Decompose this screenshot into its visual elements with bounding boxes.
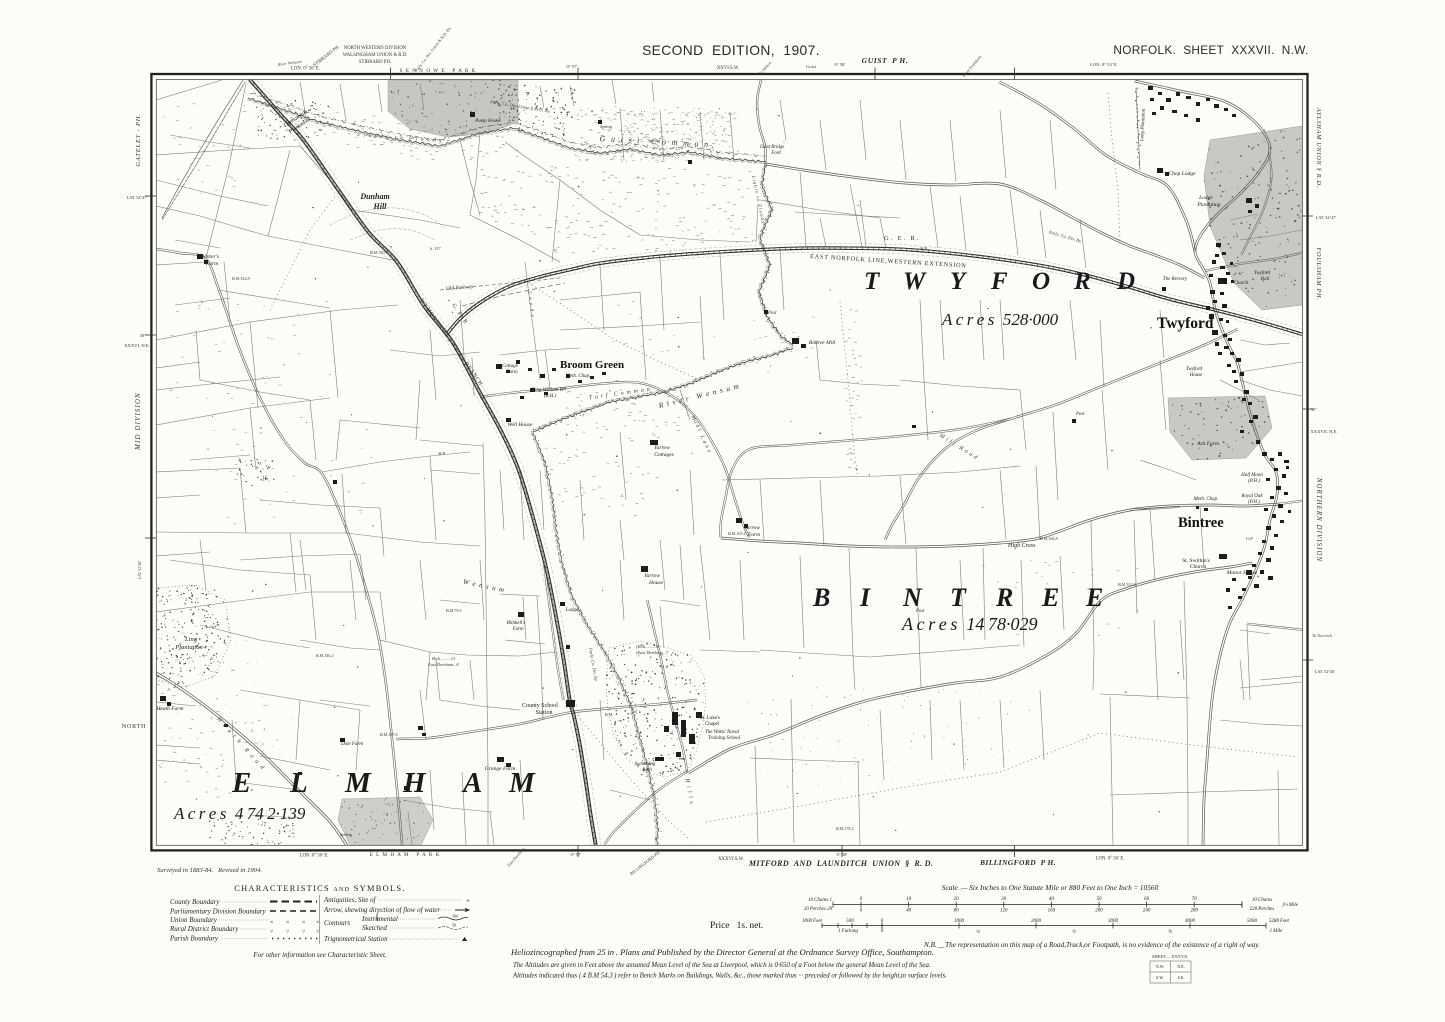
svg-text:Broom Green: Broom Green <box>560 359 624 371</box>
svg-text:H: H <box>402 767 427 799</box>
svg-text:D: D <box>1116 268 1135 295</box>
svg-text:B.M.175.2: B.M.175.2 <box>836 826 854 831</box>
svg-text:Half Moon: Half Moon <box>1240 473 1263 478</box>
svg-text:WALSINGHAM UNION & R.D.: WALSINGHAM UNION & R.D. <box>343 53 408 58</box>
svg-text:LAT. 52°47′: LAT. 52°47′ <box>1316 215 1337 220</box>
svg-text:Surveyed in 1883-84. Revised: Surveyed in 1883-84. Revised in 1904. <box>157 867 262 874</box>
svg-text:Farm: Farm <box>747 532 760 538</box>
svg-text:Cottages: Cottages <box>654 452 674 458</box>
svg-text:B.M.79.5: B.M.79.5 <box>446 608 461 613</box>
svg-text:E: E <box>231 767 251 799</box>
svg-text:120: 120 <box>1000 909 1008 914</box>
svg-text:N.B. __ The representation on: N.B. __ The representation on this map o… <box>923 941 1260 949</box>
svg-text:½: ½ <box>1072 930 1076 935</box>
svg-text:B.M.147.6: B.M.147.6 <box>380 732 398 737</box>
svg-text:A c r e s 528·000: A c r e s 528·000 <box>941 310 1059 329</box>
svg-text:(Holt.........11: (Holt.........11 <box>636 644 659 649</box>
svg-text:S.E.: S.E. <box>1178 975 1185 980</box>
svg-text:High Cross: High Cross <box>1007 543 1036 549</box>
svg-text:10 Chains: 10 Chains <box>1252 898 1272 903</box>
svg-text:Bath: Bath <box>642 768 652 773</box>
svg-text:Church: Church <box>1190 564 1206 570</box>
svg-text:Scale .— Six Inches to One Sta: Scale .— Six Inches to One Statute Mile … <box>942 883 1159 892</box>
svg-text:A c r e s 14 78·029: A c r e s 14 78·029 <box>901 614 1038 634</box>
svg-text:B.M.150.9: B.M.150.9 <box>370 250 388 255</box>
svg-text:Hill: Hill <box>373 202 388 211</box>
svg-text:Union Boundary: Union Boundary <box>170 916 218 924</box>
svg-text:House: House <box>648 580 664 586</box>
svg-text:0° 57′: 0° 57′ <box>571 852 582 857</box>
svg-text:The Altitudes are given in Fee: The Altitudes are given in Feet above th… <box>513 962 931 969</box>
svg-text:E L M H A M P A R K: E L M H A M P A R K <box>370 852 441 858</box>
svg-text:Parliamentary Division Boundar: Parliamentary Division Boundary <box>169 908 267 916</box>
svg-text:Post: Post <box>1075 412 1085 417</box>
svg-text:B.M.152.8: B.M.152.8 <box>232 276 250 281</box>
svg-text:Guist: Guist <box>806 64 817 69</box>
svg-text:M: M <box>344 767 372 799</box>
svg-text:Post: Post <box>915 609 925 614</box>
svg-text:Price 1s. net.: Price 1s. net. <box>710 921 763 931</box>
svg-text:3000: 3000 <box>1108 919 1119 924</box>
svg-text:Bintree: Bintree <box>1178 515 1224 531</box>
svg-text:A: A <box>461 767 482 799</box>
svg-text:Parish Boundary: Parish Boundary <box>169 935 219 943</box>
svg-text:Well House: Well House <box>507 422 533 428</box>
svg-text:Trignometrical Station: Trignometrical Station <box>324 935 388 943</box>
svg-text:10 Chains 1: 10 Chains 1 <box>808 898 832 903</box>
svg-text:R: R <box>995 583 1013 612</box>
svg-text:S E N N O W E P A R K: S E N N O W E P A R K <box>400 68 477 74</box>
svg-text:(B.H.): (B.H.) <box>544 394 557 399</box>
svg-text:W: W <box>903 268 927 295</box>
svg-text:CHARACTERISTICS AND SYMBOLS.: CHARACTERISTICS AND SYMBOLS. <box>234 884 406 893</box>
svg-text:Meth. Chap.: Meth. Chap. <box>565 374 591 379</box>
svg-text:0° 58′: 0° 58′ <box>835 62 846 67</box>
svg-text:LON. 0° 56′ E.: LON. 0° 56′ E. <box>1096 857 1125 862</box>
svg-text:GATELEY - PH.: GATELEY - PH. <box>135 113 142 166</box>
svg-text:Ash Farm: Ash Farm <box>1196 441 1219 447</box>
svg-text:L: L <box>289 767 308 799</box>
svg-text:b. 157: b. 157 <box>430 246 441 251</box>
svg-text:Plantation: Plantation <box>1196 202 1220 208</box>
svg-text:Twyford: Twyford <box>1186 367 1203 372</box>
svg-text:Lodge: Lodge <box>565 608 579 613</box>
svg-text:Bintree Mill: Bintree Mill <box>809 340 836 346</box>
svg-text:(P.H.): (P.H.) <box>1248 500 1260 505</box>
svg-text:To Norwich: To Norwich <box>1312 633 1332 638</box>
svg-text:Sketched: Sketched <box>362 924 387 932</box>
svg-text:Spring: Spring <box>648 138 661 143</box>
svg-text:Heliozincographed from 25 in .: Heliozincographed from 25 in . Plans and… <box>510 947 934 957</box>
svg-text:20 Perches 20: 20 Perches 20 <box>804 907 833 912</box>
svg-text:M.P.: M.P. <box>437 451 446 456</box>
svg-text:Plantation: Plantation <box>174 644 202 651</box>
svg-text:E: E <box>1041 583 1059 612</box>
svg-text:(East Dereham...7: (East Dereham...7 <box>636 650 669 655</box>
svg-text:×: × <box>270 920 273 926</box>
svg-text:1000: 1000 <box>954 919 965 924</box>
svg-text:Church: Church <box>1234 281 1249 286</box>
svg-text:The Rectory: The Rectory <box>1163 277 1188 282</box>
svg-text:Swimming: Swimming <box>635 762 656 767</box>
svg-text:G. E. R.: G. E. R. <box>884 235 920 242</box>
svg-text:Dunham: Dunham <box>359 192 389 201</box>
svg-text:N.E.: N.E. <box>1177 964 1184 969</box>
svg-text:20: 20 <box>954 897 960 902</box>
svg-text:NORTH WESTERN DIVISION: NORTH WESTERN DIVISION <box>344 46 407 51</box>
svg-text:LAT. 52°46′: LAT. 52°46′ <box>138 561 142 580</box>
svg-text:70: 70 <box>1192 897 1198 902</box>
svg-text:Instrumental: Instrumental <box>361 915 398 923</box>
svg-text:XXXVI.S.W.: XXXVI.S.W. <box>718 857 744 862</box>
svg-text:XXXVII. N.E.: XXXVII. N.E. <box>1310 429 1337 434</box>
svg-text:Yarrow: Yarrow <box>644 573 660 579</box>
svg-text:Grange Farm: Grange Farm <box>485 766 515 772</box>
svg-text:Guist Bridge: Guist Bridge <box>760 145 786 150</box>
svg-text:50: 50 <box>1097 897 1103 902</box>
svg-text:Station: Station <box>535 710 552 716</box>
svg-text:Contours: Contours <box>324 919 350 927</box>
svg-text:40: 40 <box>1049 897 1055 902</box>
svg-text:Pump House: Pump House <box>474 119 501 124</box>
svg-text:Winter's: Winter's <box>201 254 219 260</box>
svg-text:Chop Lodge: Chop Lodge <box>1168 171 1196 177</box>
svg-text:Manor House: Manor House <box>1226 570 1258 576</box>
svg-text:LAT. 52°47′: LAT. 52°47′ <box>127 195 148 200</box>
svg-text:For other information see Char: For other information see Characteristic… <box>252 951 387 959</box>
svg-text:×: × <box>302 920 305 926</box>
svg-text:County School: County School <box>522 703 558 709</box>
svg-text:AYLSHAM UNION § R.D.: AYLSHAM UNION § R.D. <box>1315 107 1322 188</box>
svg-text:Blinkell's: Blinkell's <box>507 621 526 626</box>
svg-text:LON. 0° 53′ E.: LON. 0° 53′ E. <box>1090 62 1118 67</box>
svg-text:SECOND EDITION, 1907.: SECOND EDITION, 1907. <box>642 43 820 58</box>
svg-text:N: N <box>902 583 923 612</box>
svg-text:R: R <box>1073 268 1091 295</box>
svg-text:House: House <box>1189 373 1204 378</box>
svg-text:80: 80 <box>954 909 960 914</box>
svg-text:NORTH: NORTH <box>122 724 146 730</box>
svg-text:NORFOLK. SHEET XXXVII. N.W.: NORFOLK. SHEET XXXVII. N.W. <box>1113 43 1308 57</box>
svg-text:Chapel: Chapel <box>705 722 720 727</box>
svg-text:BILLINGFORD P H.: BILLINGFORD P H. <box>979 858 1056 867</box>
svg-text:Arrow, shewing direction of fl: Arrow, shewing direction of flow of wate… <box>323 906 440 914</box>
svg-text:E: E <box>1085 583 1103 612</box>
svg-text:GUIST P H.: GUIST P H. <box>862 56 909 65</box>
svg-text:Spring: Spring <box>340 832 353 837</box>
svg-text:}¼ Mile: }¼ Mile <box>1282 903 1299 908</box>
svg-text:×: × <box>316 920 319 926</box>
svg-text:MITFORD AND LAUNDITCH UNION: MITFORD AND LAUNDITCH UNION § R. D. <box>748 859 933 868</box>
svg-text:Antiquities, Site of: Antiquities, Site of <box>323 896 377 904</box>
svg-text:G.P.: G.P. <box>1246 536 1253 541</box>
svg-text:+: + <box>466 897 470 905</box>
svg-text:Training School: Training School <box>708 736 741 741</box>
svg-text:Altitudes indicated thus ( 4 B: Altitudes indicated thus ( 4 B.M 54.3 ) … <box>512 973 947 980</box>
svg-text:SHEET.....XXXVII.: SHEET.....XXXVII. <box>1152 954 1188 959</box>
svg-text:Ford: Ford <box>770 151 781 156</box>
svg-text:2000: 2000 <box>1031 919 1042 924</box>
svg-text:160: 160 <box>1048 909 1056 914</box>
svg-text:FOULSHAM PH.: FOULSHAM PH. <box>1315 246 1322 300</box>
svg-text:Holt..........13: Holt..........13 <box>431 656 456 661</box>
svg-text:B.M.106.8: B.M.106.8 <box>1040 536 1058 541</box>
svg-text:East Dereham...8: East Dereham...8 <box>427 662 459 667</box>
svg-text:Yarrow: Yarrow <box>744 525 760 531</box>
svg-text:Yarrow: Yarrow <box>654 445 670 451</box>
svg-text:LAT. 52°46′: LAT. 52°46′ <box>1315 669 1336 674</box>
svg-text:10: 10 <box>906 897 912 902</box>
svg-text:Dale Farm: Dale Farm <box>340 742 363 747</box>
svg-text:F: F <box>990 268 1008 295</box>
svg-text:30: 30 <box>1001 897 1007 902</box>
svg-text:0° 58′: 0° 58′ <box>837 852 848 857</box>
svg-text:B.M.103.4: B.M.103.4 <box>728 531 746 536</box>
svg-text:1 Mile: 1 Mile <box>1270 929 1283 934</box>
svg-text:Farm: Farm <box>505 370 518 375</box>
svg-text:200: 200 <box>1095 909 1103 914</box>
svg-text:(P.H.): (P.H.) <box>1248 479 1260 484</box>
svg-text:Rural District Boundary: Rural District Boundary <box>169 925 239 933</box>
svg-text:Lodge: Lodge <box>1198 195 1213 201</box>
svg-text:N.W.: N.W. <box>1156 964 1164 969</box>
svg-text:S.W.: S.W. <box>1156 975 1164 980</box>
svg-text:B.M.152.2: B.M.152.2 <box>1118 582 1136 587</box>
svg-text:4000: 4000 <box>1185 919 1196 924</box>
svg-text:T: T <box>864 268 881 295</box>
svg-text:500: 500 <box>846 919 854 924</box>
svg-text:5000: 5000 <box>1247 919 1258 924</box>
svg-text:Royal Oak: Royal Oak <box>1240 494 1263 499</box>
svg-text:50: 50 <box>452 923 456 928</box>
svg-text:B.M.146.2: B.M.146.2 <box>316 653 334 658</box>
svg-text:M.P.: M.P. <box>919 246 928 251</box>
svg-text:Ling: Ling <box>184 636 198 643</box>
svg-text:240: 240 <box>1143 909 1151 914</box>
svg-text:XXXVI. N.E.: XXXVI. N.E. <box>124 343 150 348</box>
svg-text:Spring: Spring <box>600 124 613 129</box>
svg-text:30′′: 30′′ <box>1311 407 1317 412</box>
svg-text:5280 Feet: 5280 Feet <box>1269 919 1289 924</box>
svg-text:Cottage: Cottage <box>502 364 519 369</box>
svg-text:MID DIVISION: MID DIVISION <box>135 392 142 451</box>
svg-text:Twyford: Twyford <box>1157 315 1214 332</box>
svg-text:T: T <box>950 583 967 612</box>
svg-text:STIBBARD PH.: STIBBARD PH. <box>359 60 391 65</box>
svg-text:St. Luke's: St. Luke's <box>700 716 720 721</box>
svg-text:1 Furlong: 1 Furlong <box>838 929 858 934</box>
svg-text:60: 60 <box>1144 897 1150 902</box>
svg-text:A c r e s 4 74 2·139: A c r e s 4 74 2·139 <box>173 804 306 823</box>
svg-text:40: 40 <box>906 909 912 914</box>
svg-text:County Boundary: County Boundary <box>170 898 220 906</box>
svg-text:Post: Post <box>767 311 777 316</box>
svg-text:L.B.: L.B. <box>559 386 567 391</box>
svg-text:Twyford: Twyford <box>1254 271 1271 276</box>
svg-text:220 Perches: 220 Perches <box>1250 907 1274 912</box>
svg-text:I: I <box>859 583 871 612</box>
svg-text:NORTHERN DIVISION: NORTHERN DIVISION <box>1315 477 1322 562</box>
svg-text:O: O <box>1032 268 1050 295</box>
svg-text:Meth. Chap.: Meth. Chap. <box>1193 497 1219 502</box>
svg-text:B: B <box>812 583 830 612</box>
svg-text:Heath Farm: Heath Farm <box>155 706 183 712</box>
svg-text:¾: ¾ <box>1168 930 1172 935</box>
svg-text:1000 Feet: 1000 Feet <box>802 919 822 924</box>
svg-text:Farm: Farm <box>511 627 524 632</box>
svg-text:LON. 0° 56′ E.: LON. 0° 56′ E. <box>300 854 329 859</box>
svg-text:280: 280 <box>1190 909 1198 914</box>
svg-text:Hall: Hall <box>1260 277 1271 282</box>
svg-text:Farm: Farm <box>205 261 218 267</box>
svg-text:B.M.: B.M. <box>605 712 613 717</box>
svg-text:XXVI.S.W.: XXVI.S.W. <box>717 66 739 71</box>
svg-text:30′′: 30′′ <box>140 333 146 338</box>
svg-text:×: × <box>286 920 289 926</box>
svg-text:0° 57′: 0° 57′ <box>567 64 578 69</box>
svg-text:The Watts' Naval: The Watts' Naval <box>705 730 740 735</box>
svg-text:¼: ¼ <box>976 930 980 935</box>
svg-text:300: 300 <box>452 914 458 919</box>
svg-text:{: { <box>375 911 379 921</box>
